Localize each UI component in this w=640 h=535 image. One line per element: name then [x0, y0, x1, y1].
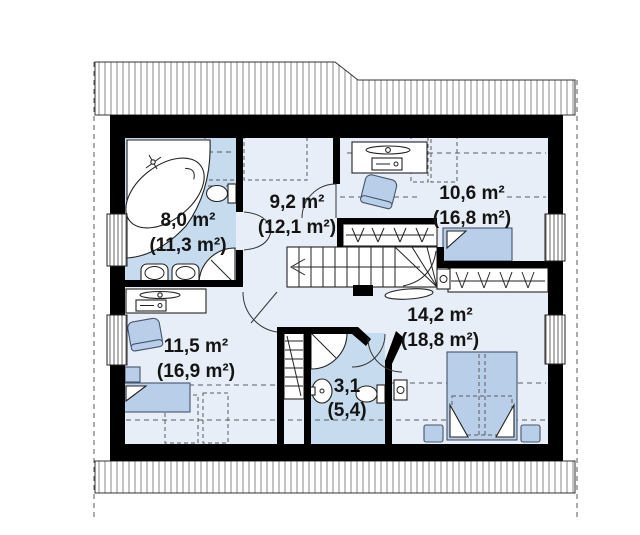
- staircase: [287, 247, 437, 287]
- toilet-icon: [207, 184, 237, 203]
- exterior-wall-right: [548, 115, 563, 461]
- room-area-gross: (16,8 m²): [433, 208, 511, 229]
- desk-icon: [352, 142, 427, 173]
- nightstand-icon: [125, 367, 140, 382]
- floor-plan-page: 8,0 m² (11,3 m²) 9,2 m² (12,1 m²) 10,6 m…: [0, 0, 640, 535]
- interior-wall: [304, 333, 311, 445]
- interior-wall: [277, 327, 284, 445]
- room-area-gross: (12,1 m²): [258, 217, 336, 238]
- wardrobe-icon: [448, 268, 548, 292]
- exterior-wall-top: [110, 115, 563, 138]
- room-area-gross: (11,3 m²): [149, 235, 226, 256]
- interior-wall: [277, 327, 352, 334]
- interior-wall: [437, 261, 548, 268]
- bed-icon: [123, 383, 190, 412]
- bed-icon: [443, 228, 512, 261]
- interior-wall: [333, 138, 340, 184]
- window: [545, 315, 565, 364]
- floor-plan: 8,0 m² (11,3 m²) 9,2 m² (12,1 m²) 10,6 m…: [0, 0, 640, 535]
- nightstand-icon: [521, 425, 540, 442]
- desk-icon: [126, 289, 206, 313]
- room-area: 14,2 m²: [407, 305, 472, 326]
- interior-wall: [385, 360, 392, 445]
- room-area-gross: (16,9 m²): [157, 361, 235, 382]
- interior-wall: [236, 138, 243, 212]
- room-area: 11,5 m²: [164, 336, 228, 357]
- double-bed-icon: [447, 352, 517, 440]
- room-area: 8,0 m²: [161, 210, 216, 231]
- window: [107, 315, 127, 365]
- interior-wall: [337, 218, 437, 224]
- exterior-wall-left: [110, 115, 125, 461]
- interior-wall: [337, 218, 343, 247]
- window: [545, 214, 565, 261]
- nightstand-icon: [424, 425, 443, 442]
- roof-band-top: [95, 62, 575, 115]
- roof-band-bottom: [95, 461, 575, 493]
- chair-icon: [127, 317, 164, 351]
- room-area-gross: (18,8 m²): [401, 330, 479, 351]
- closet-shelves-icon: [284, 333, 304, 399]
- interior-wall: [353, 285, 373, 296]
- shelf-unit-icon: [437, 269, 450, 289]
- room-area: 9,2 m²: [270, 192, 325, 213]
- window: [107, 214, 127, 266]
- shelf-unit-icon: [394, 380, 407, 400]
- interior-wall: [125, 280, 243, 287]
- exterior-wall-bottom: [110, 444, 563, 461]
- room-area: 10,6 m²: [439, 183, 504, 204]
- room-area-gross: (5,4): [327, 400, 366, 421]
- room-area: 3,1: [334, 376, 361, 397]
- wardrobe-icon: [343, 224, 437, 246]
